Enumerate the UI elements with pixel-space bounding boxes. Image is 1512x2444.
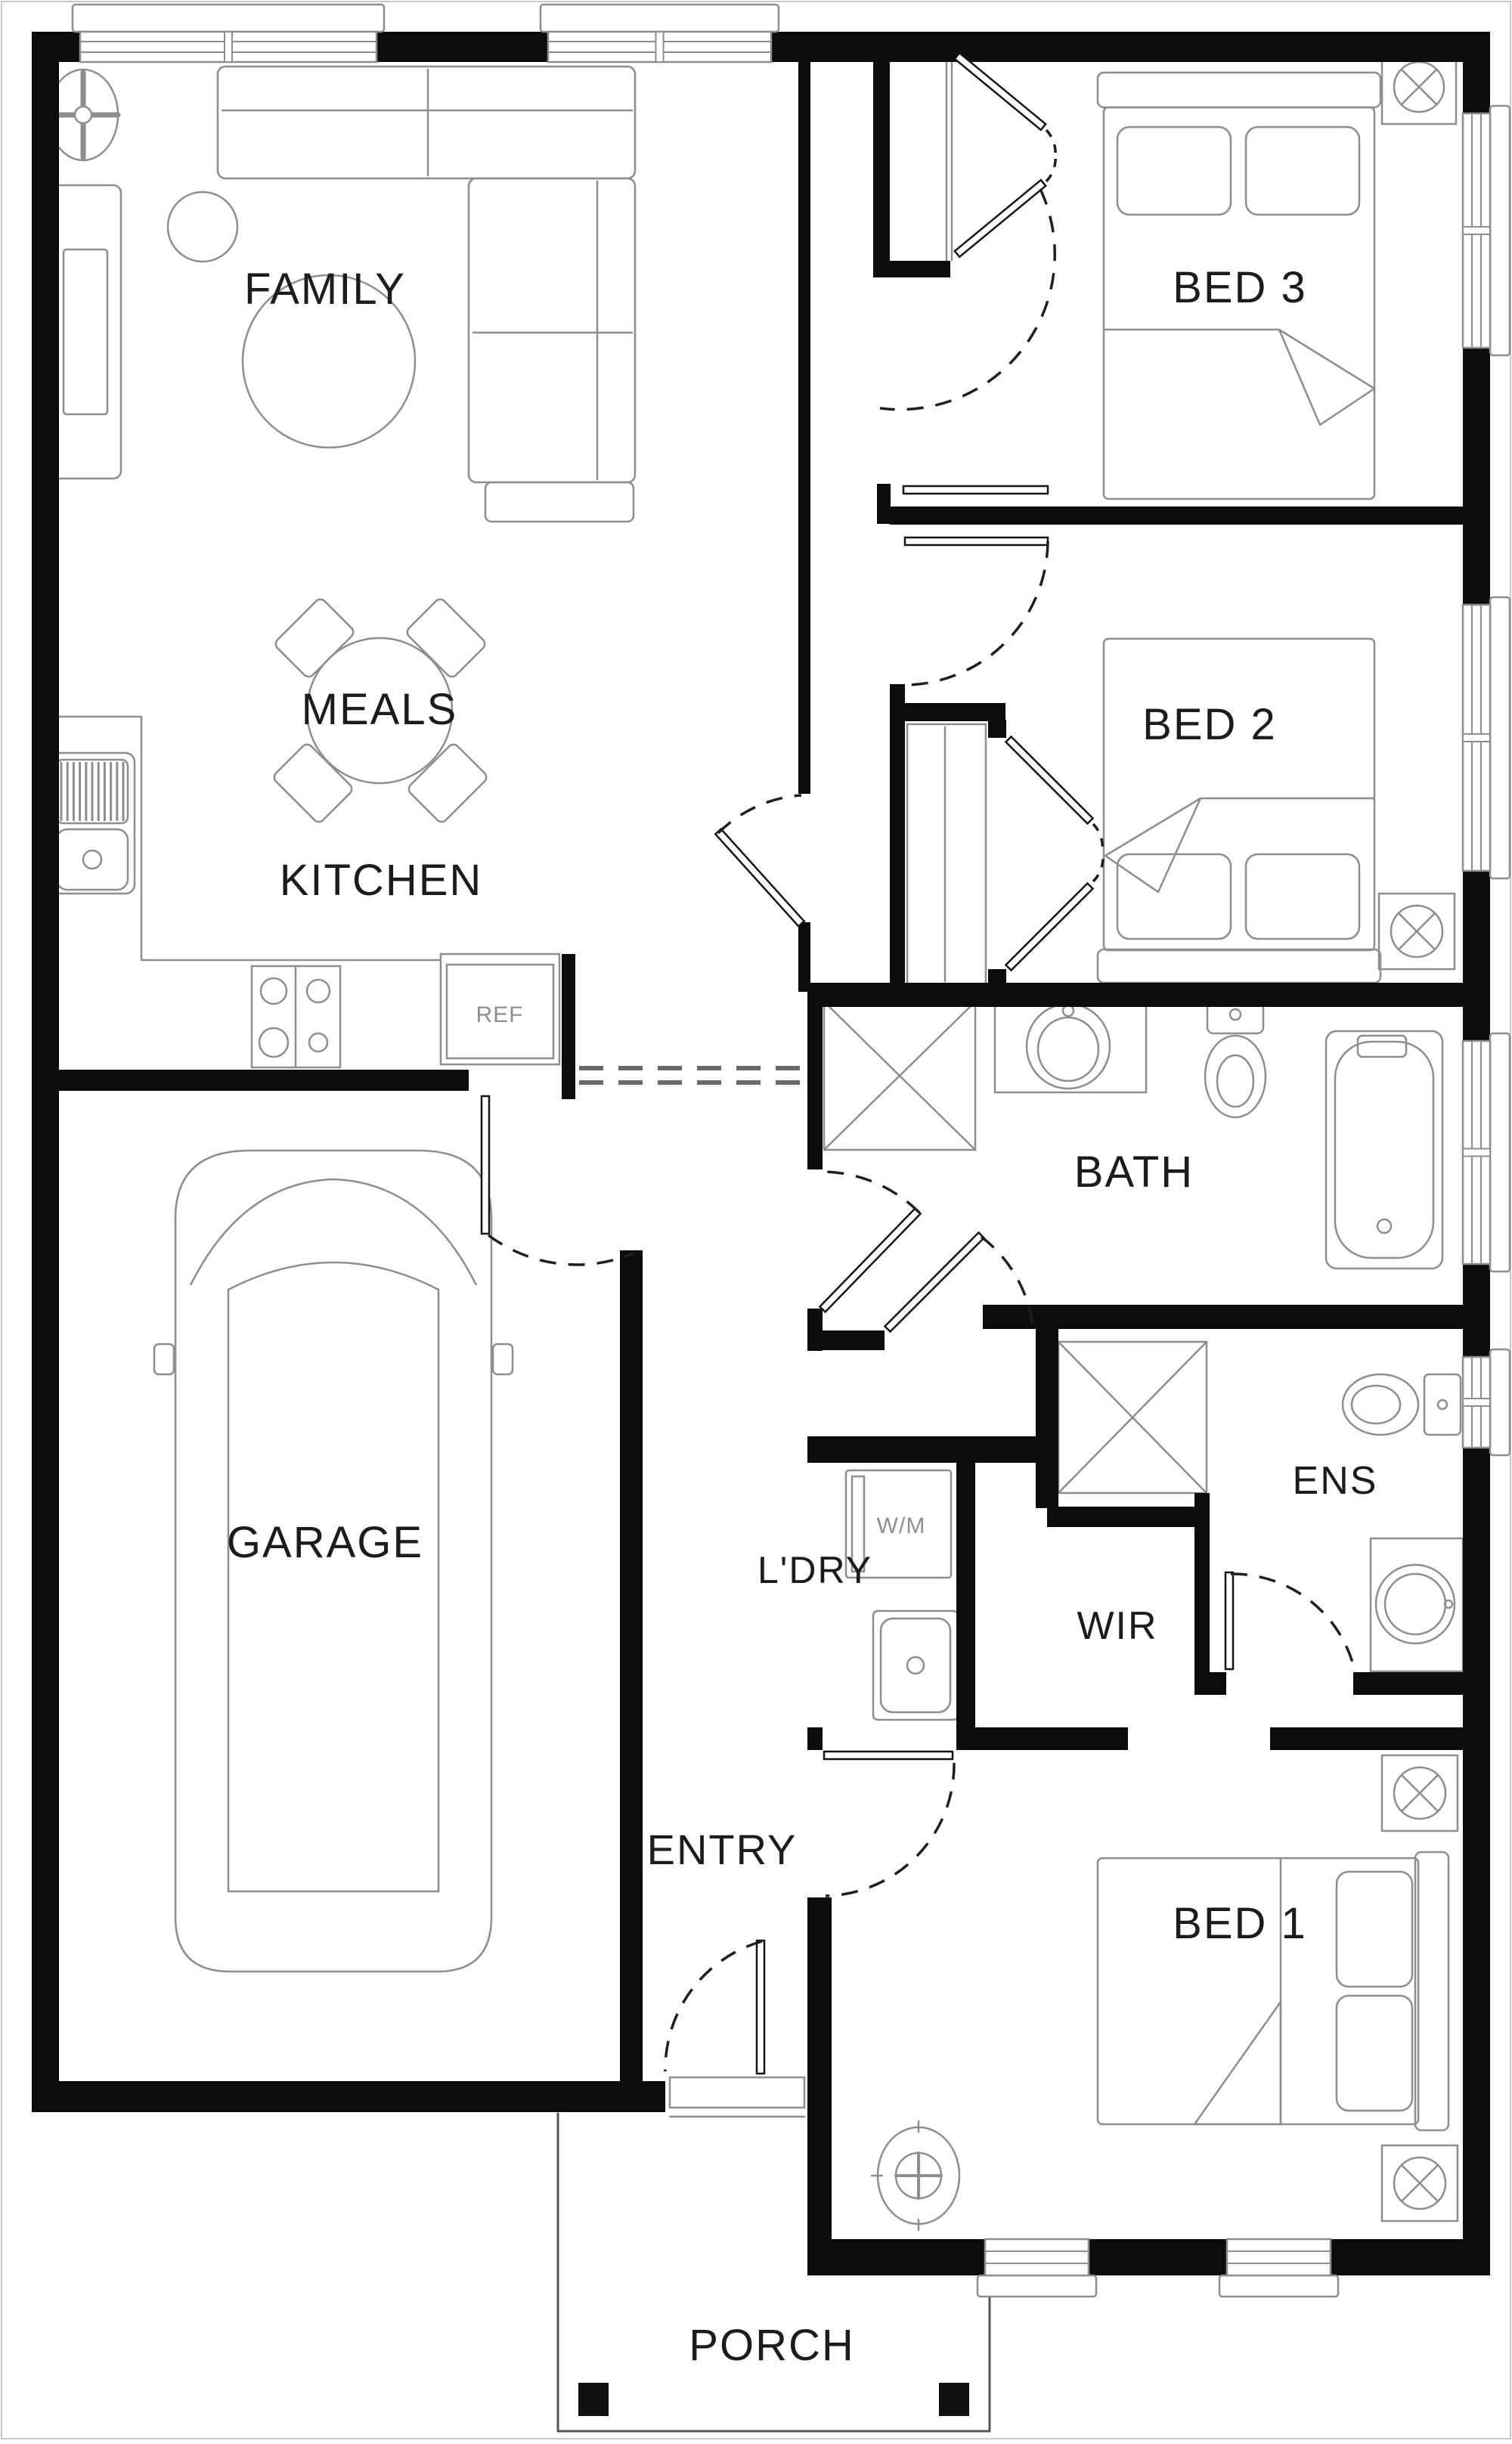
cooktop-icon [252, 966, 340, 1067]
wall-segment [798, 922, 810, 992]
room-label-porch: PORCH [689, 2321, 854, 2370]
door-leaf [757, 1941, 764, 2074]
wall-segment [620, 1250, 643, 2081]
wall-segment [798, 62, 810, 794]
wall-segment [890, 261, 950, 277]
wall-segment [807, 983, 1463, 1007]
window-right [1463, 597, 1510, 878]
floor-plan-canvas: FAMILYMEALSKITCHENBED 3BED 2BATHGARAGEEN… [0, 0, 1512, 2440]
door-leaf [824, 1752, 953, 1759]
door-leaf [905, 537, 1048, 545]
window-top [73, 5, 384, 62]
wall-segment [1047, 1507, 1210, 1527]
wall-segment [1463, 869, 1490, 1041]
wall-segment [1036, 1329, 1058, 1508]
door-leaf [1225, 1572, 1233, 1669]
wall-segment [562, 954, 575, 1099]
fridge-label: REF [476, 1002, 524, 1027]
room-label-entry: ENTRY [647, 1826, 798, 1873]
wall-segment [1194, 1493, 1210, 1695]
wall-segment [807, 1436, 1049, 1463]
wall-segment [1463, 1448, 1490, 2275]
wall-segment [890, 506, 1463, 525]
room-label-meals: MEALS [302, 685, 458, 734]
wall-segment [956, 1463, 975, 1727]
room-label-garage: GARAGE [227, 1518, 423, 1567]
window-right [1463, 1033, 1510, 1272]
room-label-ldry: L'DRY [758, 1549, 872, 1591]
window-bottom [1219, 2239, 1338, 2297]
wall-segment [771, 32, 1463, 62]
room-label-bed1: BED 1 [1173, 1899, 1307, 1948]
wall-segment [1270, 1727, 1463, 1750]
wall-segment [823, 1330, 885, 1350]
wall-segment [807, 990, 823, 1169]
room-label-wir: WIR [1077, 1604, 1157, 1648]
room-label-kitchen: KITCHEN [280, 856, 483, 905]
door-leaf [903, 486, 1048, 494]
wall-segment [1463, 1264, 1490, 1357]
wall-segment [1463, 32, 1490, 115]
floor-plan: FAMILYMEALSKITCHENBED 3BED 2BATHGARAGEEN… [0, 0, 1512, 2440]
room-label-bed2: BED 2 [1142, 700, 1277, 749]
wall-segment [1089, 2239, 1227, 2275]
window-right [1463, 106, 1510, 355]
wall-segment [1463, 348, 1490, 605]
wall-segment [890, 684, 905, 990]
room-label-bed3: BED 3 [1173, 263, 1307, 312]
washing-machine-label: W/M [877, 1513, 926, 1538]
door-leaf [482, 1096, 489, 1234]
wall-segment [1331, 2239, 1490, 2275]
room-label-family: FAMILY [244, 265, 406, 314]
wall-segment [956, 1727, 1128, 1750]
wall-segment [807, 1897, 832, 2239]
wall-segment [376, 32, 548, 62]
wall-segment [807, 1309, 823, 1351]
wall-segment [1210, 1672, 1226, 1695]
wall-segment [877, 484, 891, 524]
room-label-bath: BATH [1074, 1148, 1194, 1197]
wall-segment [807, 1727, 823, 1750]
window-bottom [978, 2239, 1096, 2297]
wall-segment [32, 32, 80, 62]
wall-segment [988, 720, 1006, 738]
window-top [541, 5, 779, 62]
room-label-ens: ENS [1293, 1459, 1378, 1503]
wall-segment [807, 2239, 985, 2275]
wall-segment [1353, 1672, 1463, 1695]
wall-segment [905, 703, 1005, 721]
window-right [1463, 1349, 1510, 1455]
wall-segment [32, 2081, 665, 2112]
wall-segment [983, 1305, 1463, 1329]
wall-segment [873, 62, 890, 277]
wall-segment [32, 1070, 469, 1091]
